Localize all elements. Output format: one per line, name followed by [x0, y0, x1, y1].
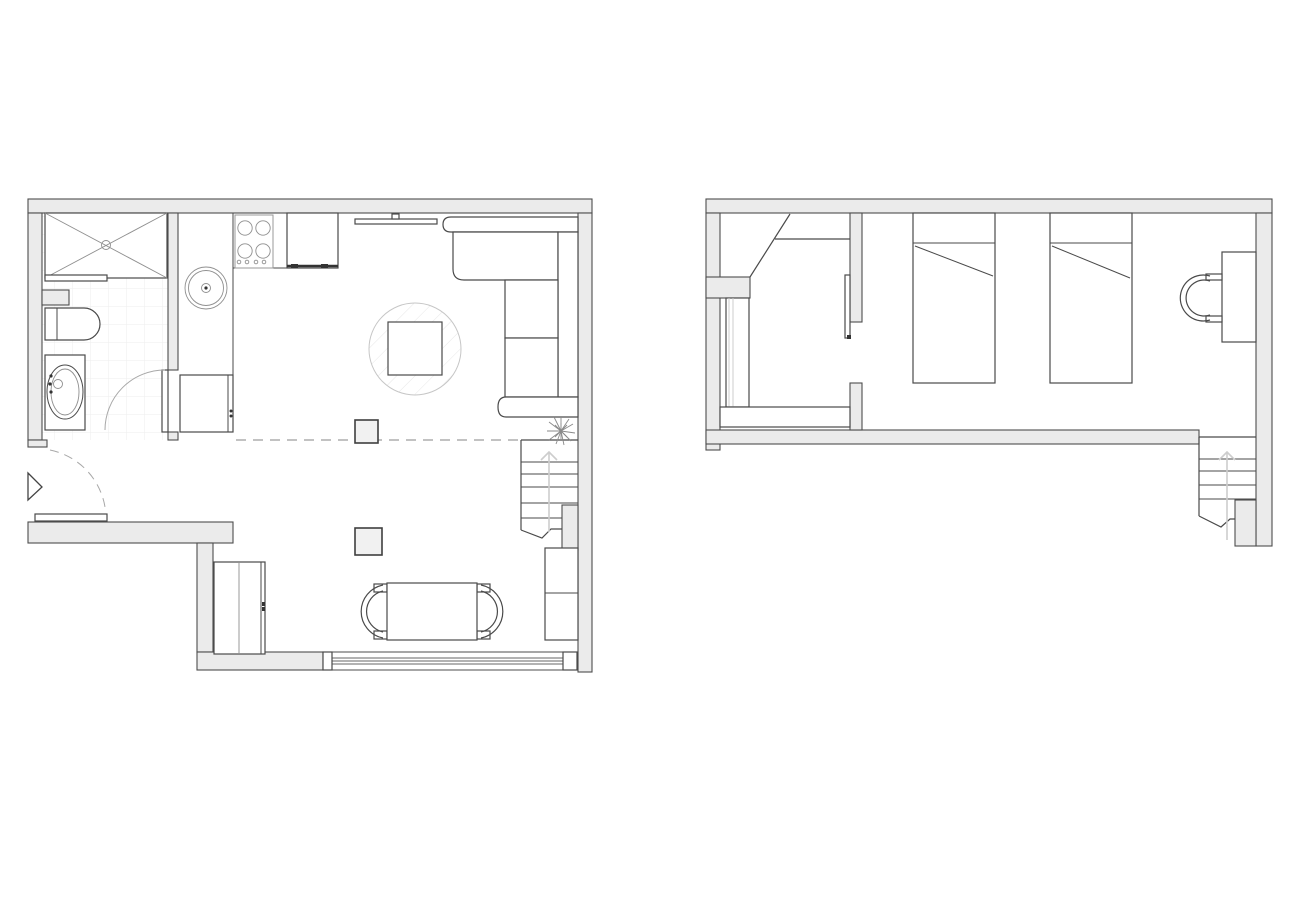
chair-back-inner [1186, 280, 1210, 316]
wall-top [706, 199, 1272, 213]
wardrobe-handle-1 [262, 602, 265, 606]
wall-left-end-cap [28, 440, 47, 447]
curved-bench-left [361, 584, 387, 639]
wall-middle-lower [850, 383, 862, 430]
chair-pad-bottom [1206, 316, 1222, 322]
wall-bathroom-stub [42, 290, 69, 305]
hob [235, 215, 273, 268]
sliding-door-leaf [845, 275, 850, 338]
wall-right [1256, 213, 1272, 546]
wall-left [28, 213, 42, 440]
kitchen-sink-drain-dot [204, 286, 207, 289]
wall-stair-notch [562, 505, 578, 550]
sofa-seat-bottom [505, 338, 558, 397]
wall-left [706, 213, 720, 450]
wall-closet-stub [706, 277, 750, 298]
floor-plan-drawing [0, 0, 1300, 900]
wall-bottom [197, 652, 323, 670]
entrance [28, 450, 107, 521]
twin-bedroom [913, 213, 1256, 540]
sofa-back-top [443, 217, 578, 232]
sofa-seat-top [453, 232, 558, 280]
wall-middle-upper [850, 213, 862, 322]
wall-bathroom-divider [168, 213, 178, 370]
single-bed-1 [913, 213, 995, 383]
window-cap-right [563, 652, 577, 670]
sofa-armrest [498, 397, 578, 417]
living-area [355, 214, 578, 555]
desk-and-chair [1180, 252, 1256, 342]
sliding-door-handle [847, 335, 851, 339]
tap-handle-1 [49, 374, 52, 377]
cabinet-hinge-2 [321, 264, 328, 268]
tap-handle-2 [48, 382, 51, 385]
wall-stair-corner-block [1235, 500, 1256, 546]
wall-entry-slab [28, 522, 233, 543]
wall-right [578, 213, 592, 672]
floor-plan-page [0, 0, 1300, 900]
low-shelf-unit [720, 407, 850, 427]
corner-sofa [443, 217, 578, 417]
window [323, 652, 577, 670]
entry-direction-triangle [28, 473, 42, 500]
kitchen-base-cabinet [180, 375, 233, 432]
structural-column-1 [355, 420, 378, 443]
wall-top [28, 199, 592, 213]
wall-bathroom-divider-stub [168, 432, 178, 440]
stair-break-line [521, 529, 562, 538]
wall-tv [355, 219, 437, 224]
tall-cabinet [545, 548, 578, 640]
sofa-seat-mid [505, 280, 558, 338]
chair-pad-top [1206, 274, 1222, 280]
stair-up-arrow [541, 452, 557, 532]
stair-break-line [1199, 516, 1235, 527]
closet-room [720, 214, 851, 427]
base-cabinet-handle-2 [230, 415, 233, 418]
tv-bracket [392, 214, 399, 219]
curved-bench-right [477, 584, 503, 639]
wardrobe-handle-2 [262, 607, 265, 611]
kitchen-wall-cabinet [287, 213, 338, 268]
shower-screen [45, 275, 107, 281]
upper-floor-plan [706, 199, 1272, 546]
wall-lower-vertical [197, 543, 213, 652]
cabinet-hinge-1 [291, 264, 298, 268]
tap-handle-3 [49, 390, 52, 393]
single-bed-2 [1050, 213, 1132, 383]
structural-column-2 [355, 528, 382, 555]
sloped-wall-diagonal [750, 214, 790, 277]
sofa-back-right [558, 232, 578, 397]
bathroom-door-leaf [162, 370, 168, 432]
entrance-door-leaf [35, 514, 107, 521]
window-cap-left [323, 652, 332, 670]
desk [1222, 252, 1256, 342]
ground-floor-plan [28, 199, 592, 672]
toilet [45, 308, 100, 340]
wall-bottom [706, 430, 1199, 444]
kitchen [180, 213, 338, 432]
wardrobe [214, 562, 265, 654]
coffee-table [388, 322, 442, 375]
base-cabinet-handle-1 [230, 410, 233, 413]
entrance-door-swing-arc [50, 450, 105, 507]
dining-table [387, 583, 477, 640]
plant [547, 417, 575, 445]
